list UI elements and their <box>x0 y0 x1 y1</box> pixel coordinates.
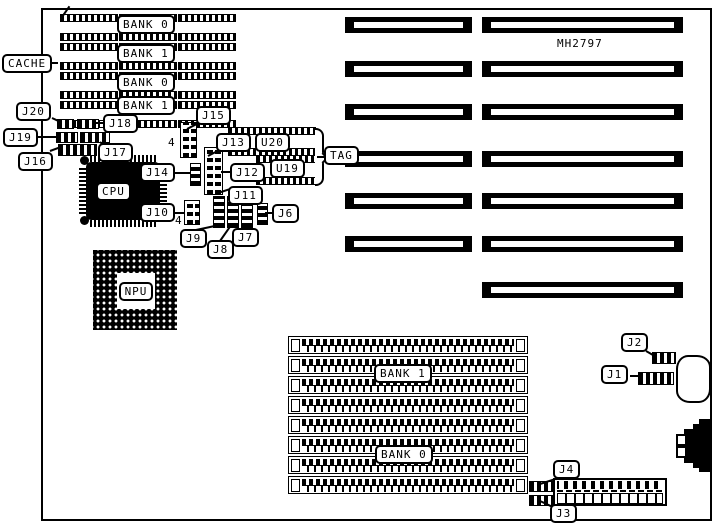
power-connector-contacts <box>557 481 663 489</box>
battery-outline <box>676 355 711 403</box>
callout-line <box>37 136 56 138</box>
jumper-j16-pins <box>58 144 97 156</box>
keyboard-connector-notch <box>676 434 687 446</box>
cache-bank0b-label: BANK 0 <box>117 73 175 92</box>
cache-chip <box>178 72 236 99</box>
jumper-j9-pins <box>213 196 225 228</box>
npu-label: NPU <box>119 282 154 301</box>
cache-chip <box>178 14 236 41</box>
isa-slot-segment <box>482 151 683 167</box>
simm-socket <box>288 476 528 494</box>
simm-socket <box>288 336 528 354</box>
label-j15: J15 <box>196 106 231 125</box>
u19-label: U19 <box>270 159 305 178</box>
npu-center: NPU <box>117 273 155 309</box>
label-j11: J11 <box>228 186 263 205</box>
cache-bank0-label: BANK 0 <box>117 15 175 34</box>
cache-bank1-label: BANK 1 <box>117 44 175 63</box>
label-j17: J17 <box>98 143 133 162</box>
tag-label: TAG <box>324 146 359 165</box>
isa-slot-segment <box>482 193 683 209</box>
isa-slot-segment <box>482 282 683 298</box>
cpu-label: CPU <box>96 182 131 201</box>
isa-slot-segment <box>482 17 683 33</box>
power-connector-dashes <box>557 490 663 492</box>
cache-chip <box>178 43 236 70</box>
j10-pin4-annotation: 4 <box>175 214 183 227</box>
label-j1: J1 <box>601 365 628 384</box>
label-j13: J13 <box>216 133 251 152</box>
simm-socket <box>288 396 528 414</box>
u20-label: U20 <box>255 133 290 152</box>
label-j2: J2 <box>621 333 648 352</box>
power-connector <box>553 478 667 506</box>
isa-slot-segment <box>482 61 683 77</box>
isa-slot-segment <box>345 193 472 209</box>
simm-bank0-label: BANK 0 <box>375 445 433 464</box>
jumper-j19-pins <box>56 132 78 143</box>
jumper-j2-pins <box>652 352 676 364</box>
keyboard-connector-notch <box>676 446 687 458</box>
simm-bank1-label: BANK 1 <box>374 364 432 383</box>
label-j9: J9 <box>180 229 207 248</box>
jumper-j6-pins <box>257 203 268 225</box>
cache-label: CACHE <box>2 54 52 73</box>
label-j3: J3 <box>550 504 577 523</box>
isa-slot-segment <box>482 104 683 120</box>
jumper-j1-pins <box>638 372 674 385</box>
motherboard-diagram: BANK 0 BANK 1 BANK 0 BANK 1 CACHE J20 J1… <box>0 0 716 527</box>
cache-chip <box>60 43 118 70</box>
jumper-j17-pins <box>80 132 110 143</box>
label-j12: J12 <box>230 163 265 182</box>
isa-slot-segment <box>482 236 683 252</box>
cache-chip <box>60 14 118 41</box>
cache-chip <box>60 72 118 99</box>
label-j4: J4 <box>553 460 580 479</box>
label-j6: J6 <box>272 204 299 223</box>
jumper-j14-pins <box>190 163 201 186</box>
board-model-text: MH2797 <box>557 37 603 50</box>
jumper-j18-pins <box>77 119 99 129</box>
power-connector-sockets <box>557 493 663 504</box>
j15-pin4-annotation: 4 <box>168 136 176 149</box>
callout-line <box>630 375 640 377</box>
label-j10: J10 <box>140 203 175 222</box>
npu-socket: NPU <box>93 250 177 330</box>
label-j14: J14 <box>140 163 175 182</box>
simm-socket <box>288 416 528 434</box>
isa-slot-segment <box>345 61 472 77</box>
cpu-pins <box>79 168 86 214</box>
jumper-j10-pins <box>184 200 200 225</box>
isa-slot-segment <box>345 151 472 167</box>
label-j20: J20 <box>16 102 51 121</box>
isa-slot-segment <box>345 236 472 252</box>
label-j8: J8 <box>207 240 234 259</box>
isa-slot-segment <box>345 17 472 33</box>
isa-slot-segment <box>345 104 472 120</box>
label-j19: J19 <box>3 128 38 147</box>
label-j7: J7 <box>232 228 259 247</box>
label-j18: J18 <box>103 114 138 133</box>
label-j16: J16 <box>18 152 53 171</box>
cache-bank1b-label: BANK 1 <box>117 96 175 115</box>
callout-line <box>174 172 190 174</box>
